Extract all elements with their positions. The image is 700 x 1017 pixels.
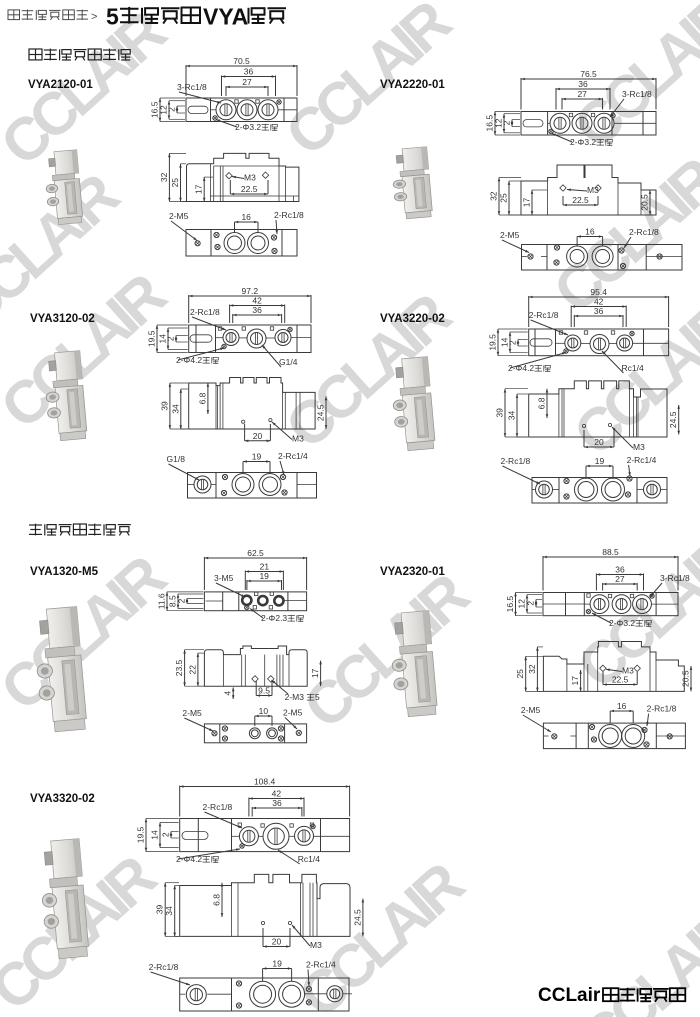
svg-text:2-Rc1/8: 2-Rc1/8 [529,310,559,320]
svg-text:20.5: 20.5 [640,194,650,211]
svg-text:VYA2320-01: VYA2320-01 [380,566,445,578]
svg-text:16: 16 [241,212,251,222]
svg-text:M3: M3 [244,173,256,183]
svg-text:36: 36 [578,79,588,89]
svg-text:VYA2120-01: VYA2120-01 [28,79,93,91]
svg-text:19: 19 [252,452,262,462]
svg-text:2-Rc1/8: 2-Rc1/8 [501,456,531,466]
svg-text:42: 42 [272,789,282,799]
svg-text:2-M5: 2-M5 [169,211,189,221]
svg-text:9.5: 9.5 [258,686,270,696]
svg-text:17: 17 [570,676,580,686]
svg-text:2-Rc1/8: 2-Rc1/8 [190,307,220,317]
svg-text:2-Rc1/8: 2-Rc1/8 [149,962,179,972]
svg-text:32: 32 [527,664,537,674]
svg-text:16: 16 [617,701,627,711]
svg-text:42: 42 [594,297,604,307]
svg-text:27: 27 [615,574,625,584]
svg-text:6.8: 6.8 [197,392,207,404]
svg-text:16.5: 16.5 [505,596,515,613]
svg-text:2: 2 [508,340,518,345]
svg-text:>: > [91,11,97,23]
svg-text:2: 2 [167,107,177,112]
svg-text:2: 2 [166,336,176,341]
svg-text:14: 14 [150,830,160,840]
svg-text:24.5: 24.5 [352,909,362,926]
svg-text:19.5: 19.5 [147,330,157,347]
svg-text:5: 5 [106,4,119,30]
svg-text:4: 4 [223,691,233,696]
svg-text:19.5: 19.5 [136,826,146,843]
svg-text:5: 5 [315,692,320,702]
svg-text:62.5: 62.5 [247,548,264,558]
svg-text:17: 17 [522,198,532,208]
svg-text:36: 36 [594,306,604,316]
svg-text:2-Rc1/4: 2-Rc1/4 [306,960,336,970]
svg-text:3-M5: 3-M5 [214,573,234,583]
svg-text:34: 34 [164,906,174,916]
svg-text:20: 20 [594,437,604,447]
svg-text:CCLAIR: CCLAIR [541,144,700,325]
svg-text:M3: M3 [633,442,645,452]
svg-text:32: 32 [489,191,499,201]
svg-text:2: 2 [502,120,512,125]
svg-text:2-Rc1/8: 2-Rc1/8 [647,704,677,714]
svg-text:39: 39 [495,408,505,418]
svg-text:16: 16 [585,227,595,237]
svg-text:G1/4: G1/4 [279,357,298,367]
svg-text:21: 21 [260,562,270,572]
svg-text:24.5: 24.5 [316,404,326,421]
svg-text:36: 36 [272,798,282,808]
svg-text:88.5: 88.5 [602,547,619,557]
svg-text:39: 39 [155,905,165,915]
svg-text:22.5: 22.5 [612,675,629,685]
svg-text:M3: M3 [310,940,322,950]
svg-text:20: 20 [272,937,282,947]
svg-text:97.2: 97.2 [242,286,259,296]
svg-text:VYA1320-M5: VYA1320-M5 [30,566,99,578]
svg-text:2-Φ2.3: 2-Φ2.3 [261,613,287,623]
svg-text:VYA3120-02: VYA3120-02 [30,313,95,325]
svg-text:25: 25 [515,669,525,679]
svg-text:42: 42 [252,296,262,306]
svg-text:27: 27 [242,77,252,87]
svg-text:2-Rc1/8: 2-Rc1/8 [274,210,304,220]
svg-text:20.5: 20.5 [681,670,691,687]
svg-text:34: 34 [507,411,517,421]
svg-text:2-Rc1/8: 2-Rc1/8 [629,227,659,237]
svg-text:36: 36 [252,305,262,315]
svg-text:M3: M3 [587,185,599,195]
svg-text:70.5: 70.5 [233,56,250,66]
svg-text:CCLair: CCLair [538,985,601,1006]
svg-text:VYA3320-02: VYA3320-02 [30,793,95,805]
svg-text:6.8: 6.8 [537,397,547,409]
svg-text:108.4: 108.4 [254,777,276,787]
svg-text:34: 34 [170,404,180,414]
svg-text:39: 39 [159,401,169,411]
svg-text:20: 20 [253,431,263,441]
svg-text:2-Φ3.2: 2-Φ3.2 [235,122,261,132]
svg-text:17: 17 [310,668,320,678]
svg-text:3-Rc1/8: 3-Rc1/8 [660,573,690,583]
svg-text:24.5: 24.5 [668,411,678,428]
svg-text:2-M5: 2-M5 [182,708,202,718]
svg-text:2: 2 [177,598,187,603]
svg-text:M3: M3 [292,434,304,444]
svg-text:VYA: VYA [203,4,248,30]
svg-text:Rc1/4: Rc1/4 [298,854,320,864]
svg-text:G1/8: G1/8 [167,454,186,464]
svg-text:2-Rc1/4: 2-Rc1/4 [278,451,308,461]
svg-text:32: 32 [159,172,169,182]
svg-text:22: 22 [187,665,197,675]
svg-text:CCLAIR: CCLAIR [291,560,482,741]
svg-text:2-M5: 2-M5 [500,230,520,240]
svg-text:19: 19 [272,959,282,969]
svg-text:25: 25 [499,193,509,203]
svg-text:19: 19 [595,456,605,466]
svg-text:11.6: 11.6 [157,593,167,609]
svg-text:76.5: 76.5 [580,69,597,79]
svg-text:10: 10 [259,706,269,716]
svg-text:2: 2 [161,832,171,837]
svg-text:22.5: 22.5 [241,184,258,194]
svg-text:95.4: 95.4 [590,287,607,297]
svg-text:2-Φ3.2: 2-Φ3.2 [609,618,635,628]
svg-text:2-M5: 2-M5 [521,705,541,715]
svg-text:2: 2 [526,601,536,606]
svg-text:VYA2220-01: VYA2220-01 [380,79,445,91]
svg-text:36: 36 [244,67,254,77]
svg-text:M3: M3 [622,666,634,676]
svg-text:36: 36 [615,565,625,575]
svg-text:6.8: 6.8 [212,894,222,906]
svg-text:19.5: 19.5 [488,334,498,351]
svg-text:2-M5: 2-M5 [283,708,303,718]
svg-text:VYA3220-02: VYA3220-02 [380,313,445,325]
svg-text:2-Φ3.2: 2-Φ3.2 [570,137,596,147]
svg-text:3-Rc1/8: 3-Rc1/8 [177,82,207,92]
svg-text:2-Rc1/4: 2-Rc1/4 [627,455,657,465]
svg-text:22.5: 22.5 [572,195,589,205]
svg-text:17: 17 [194,184,204,194]
svg-text:2-Rc1/8: 2-Rc1/8 [203,802,233,812]
svg-text:23.5: 23.5 [174,659,184,676]
svg-text:19: 19 [259,571,269,581]
svg-text:3-Rc1/8: 3-Rc1/8 [622,89,652,99]
svg-text:25: 25 [170,178,180,188]
svg-text:Rc1/4: Rc1/4 [622,363,644,373]
svg-text:27: 27 [577,89,587,99]
